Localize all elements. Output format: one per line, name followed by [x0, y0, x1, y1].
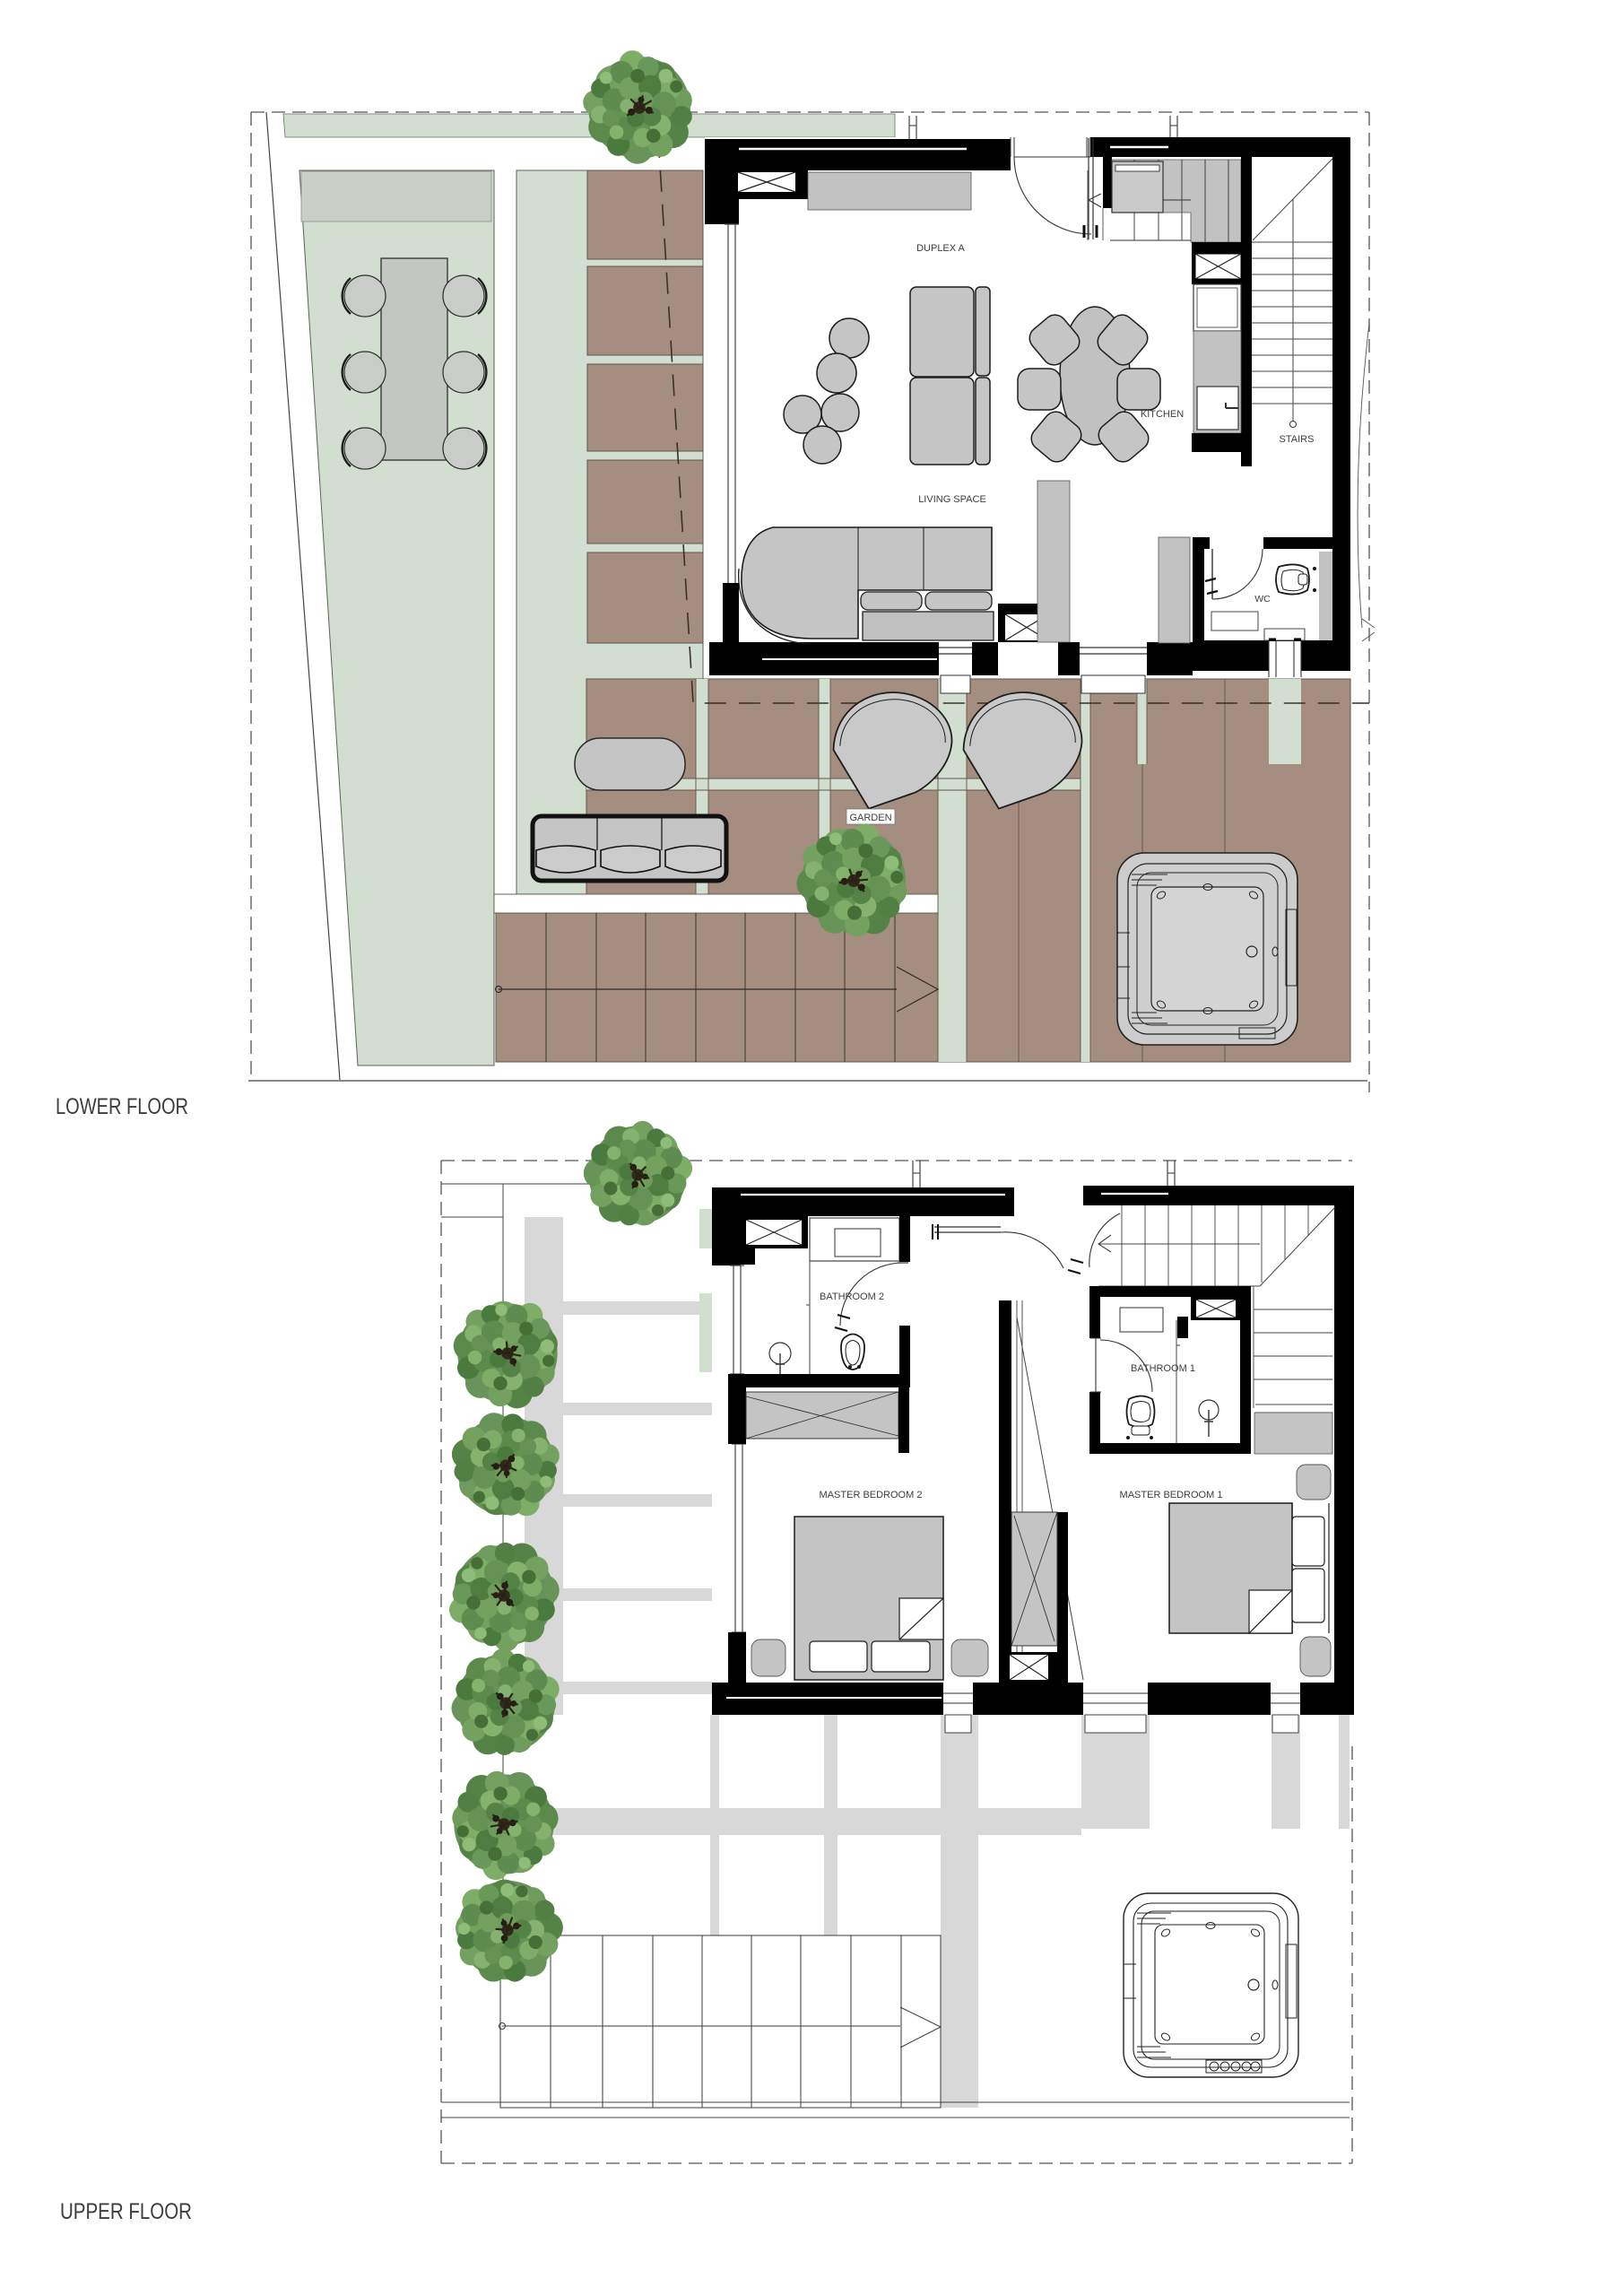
svg-text:MASTER BEDROOM 1: MASTER BEDROOM 1: [1120, 1490, 1223, 1500]
svg-text:LIVING SPACE: LIVING SPACE: [918, 494, 986, 505]
svg-text:UPPER FLOOR: UPPER FLOOR: [60, 2199, 192, 2224]
svg-text:DUPLEX A: DUPLEX A: [916, 243, 965, 254]
svg-text:LOWER FLOOR: LOWER FLOOR: [56, 1094, 188, 1119]
svg-text:GARDEN: GARDEN: [849, 813, 891, 823]
svg-text:KITCHEN: KITCHEN: [1141, 409, 1184, 420]
svg-text:WC: WC: [1254, 594, 1271, 604]
svg-text:BATHROOM 1: BATHROOM 1: [1131, 1363, 1195, 1374]
svg-text:STAIRS: STAIRS: [1280, 434, 1315, 445]
svg-text:MASTER BEDROOM 2: MASTER BEDROOM 2: [820, 1490, 923, 1500]
svg-text:BATHROOM 2: BATHROOM 2: [820, 1291, 884, 1302]
